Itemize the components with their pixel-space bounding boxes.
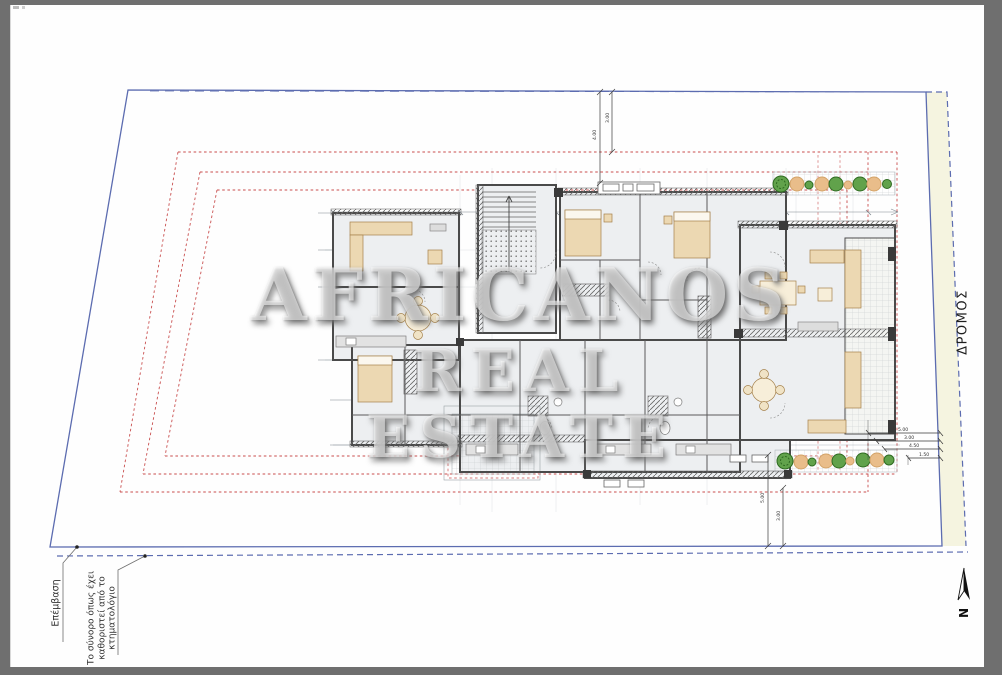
- dim-top-a: 4.00: [592, 130, 598, 140]
- screenshot-stage: 4.00 3.00 5.00 3.00 5.00 3.00 4.50 1.50 …: [0, 0, 1002, 675]
- dim-right-c: 4.50: [909, 443, 919, 449]
- dim-bottom-b: 3.00: [776, 511, 782, 521]
- road-label: ΔΡΟΜΟΣ: [956, 289, 971, 355]
- dim-top-b: 3.00: [605, 113, 611, 123]
- annotation-boundary-line3: κτηματολόγιο: [107, 571, 118, 665]
- page-corner-marks: [13, 6, 25, 9]
- north-label: N: [957, 608, 971, 618]
- dim-right-a: 5.00: [898, 427, 908, 433]
- annotation-boundary-line2: καθοριστεί από το: [97, 571, 108, 665]
- site-plan-drawing: 4.00 3.00 5.00 3.00 5.00 3.00 4.50 1.50: [0, 0, 1002, 675]
- dim-bottom-a: 5.00: [760, 493, 766, 503]
- dim-right-b: 3.00: [904, 435, 914, 441]
- dim-right-d: 1.50: [919, 452, 929, 458]
- annotation-boundary-line1: Το σύνορο όπως έχει: [86, 571, 97, 665]
- annotation-intervention: Επέμβαση: [51, 579, 62, 626]
- annotation-boundary-note: Το σύνορο όπως έχει καθοριστεί από το κτ…: [86, 571, 118, 665]
- north-arrow: [958, 568, 970, 600]
